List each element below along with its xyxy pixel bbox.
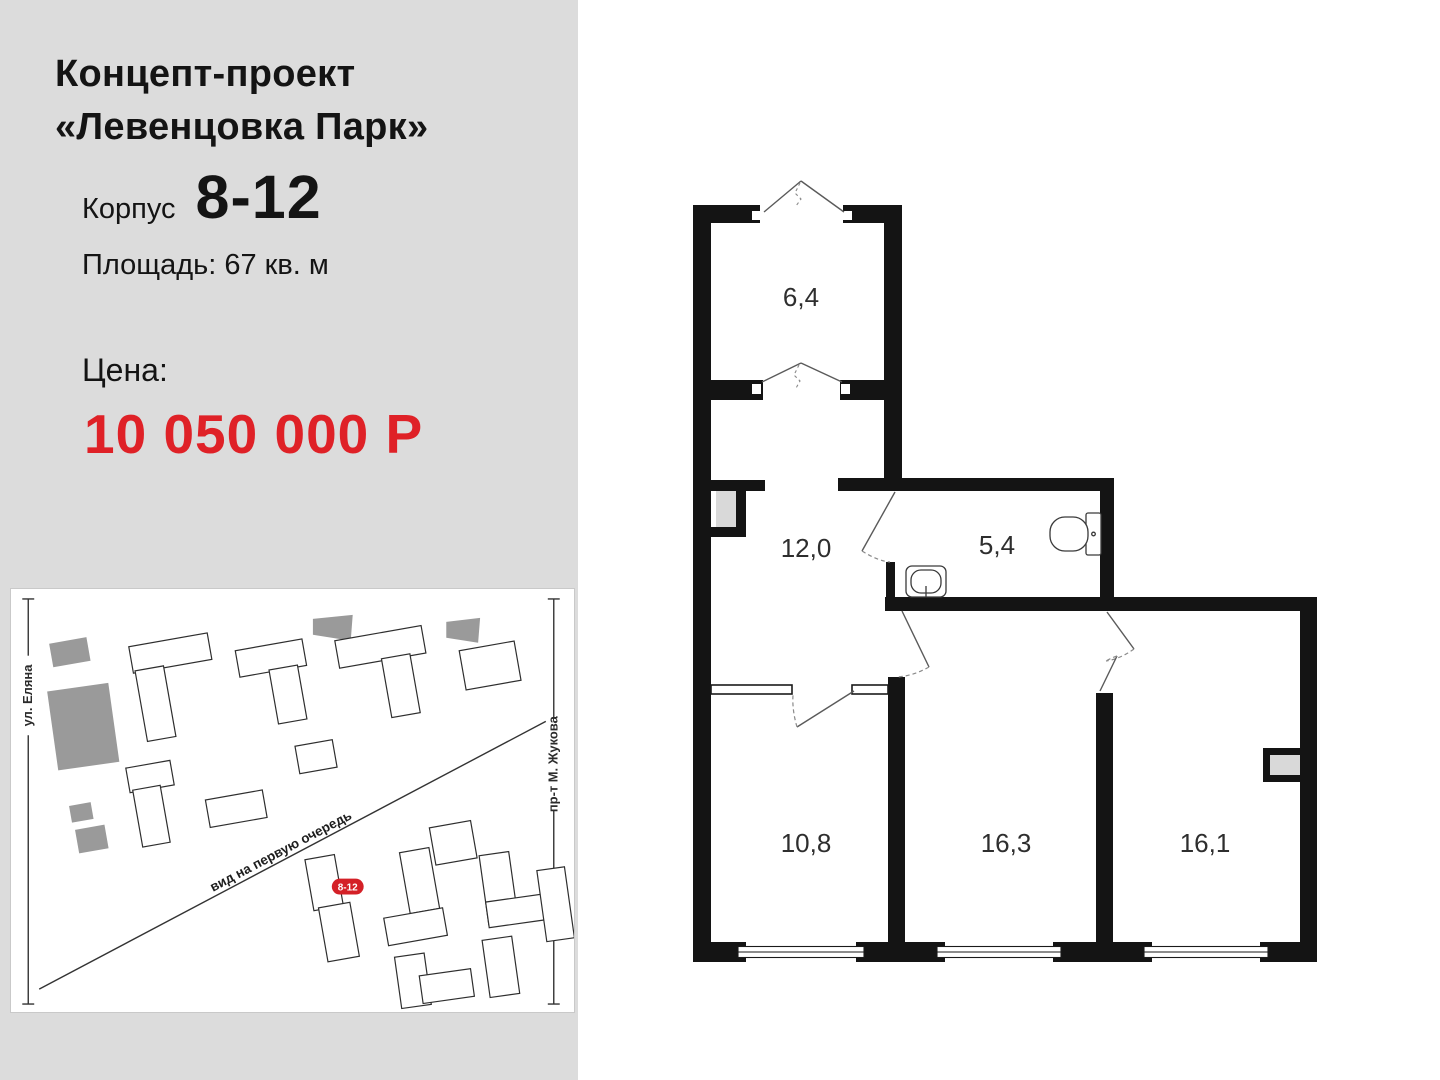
vent-shaft-hall — [716, 491, 736, 527]
door-loggia-outer — [764, 181, 844, 212]
window-living-room — [937, 942, 1061, 962]
sink-icon — [906, 566, 946, 597]
door-bedroom-1 — [793, 691, 854, 727]
room-label-hall: 12,0 — [781, 533, 832, 563]
window-bedroom-1 — [738, 942, 864, 962]
room-label-bathroom: 5,4 — [979, 530, 1015, 560]
thin-partitions — [711, 685, 888, 694]
door-bedroom-2 — [1100, 612, 1134, 691]
room-label-bedroom-1: 10,8 — [781, 828, 832, 858]
room-labels: 6,4 12,0 5,4 10,8 16,3 16,1 — [781, 282, 1231, 858]
window-bedroom-2 — [1144, 942, 1268, 962]
room-label-bedroom-2: 16,1 — [1180, 828, 1231, 858]
vent-shaft-bedroom-2 — [1263, 748, 1307, 782]
room-label-loggia: 6,4 — [783, 282, 819, 312]
doors — [762, 181, 1134, 727]
poster-canvas: Концепт-проект «Левенцовка Парк» Корпус … — [0, 0, 1440, 1080]
door-bathroom — [862, 492, 895, 562]
door-living-room — [897, 611, 929, 677]
door-loggia-inner — [762, 363, 842, 390]
room-label-living-room: 16,3 — [981, 828, 1032, 858]
floor-plan: 6,4 12,0 5,4 10,8 16,3 16,1 — [0, 0, 1440, 1080]
toilet-icon — [1050, 513, 1101, 555]
windows — [738, 942, 1268, 962]
